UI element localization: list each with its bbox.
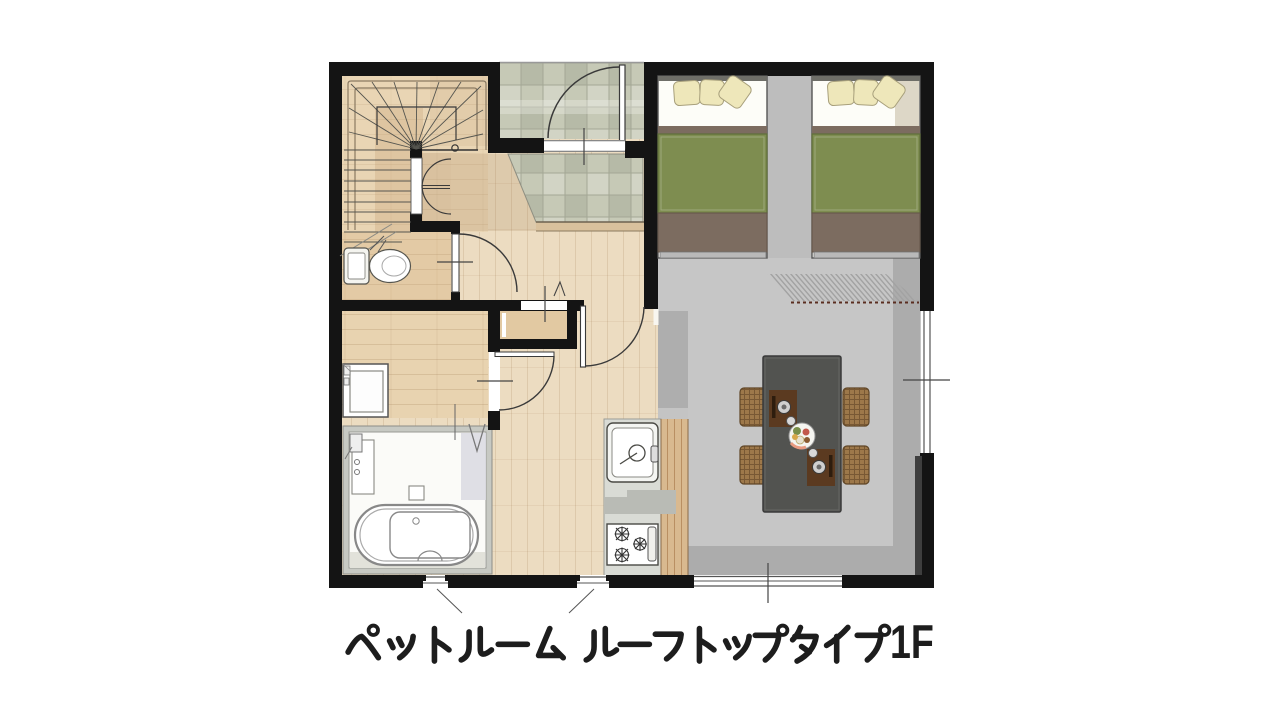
svg-text:1F: 1F (890, 616, 934, 669)
